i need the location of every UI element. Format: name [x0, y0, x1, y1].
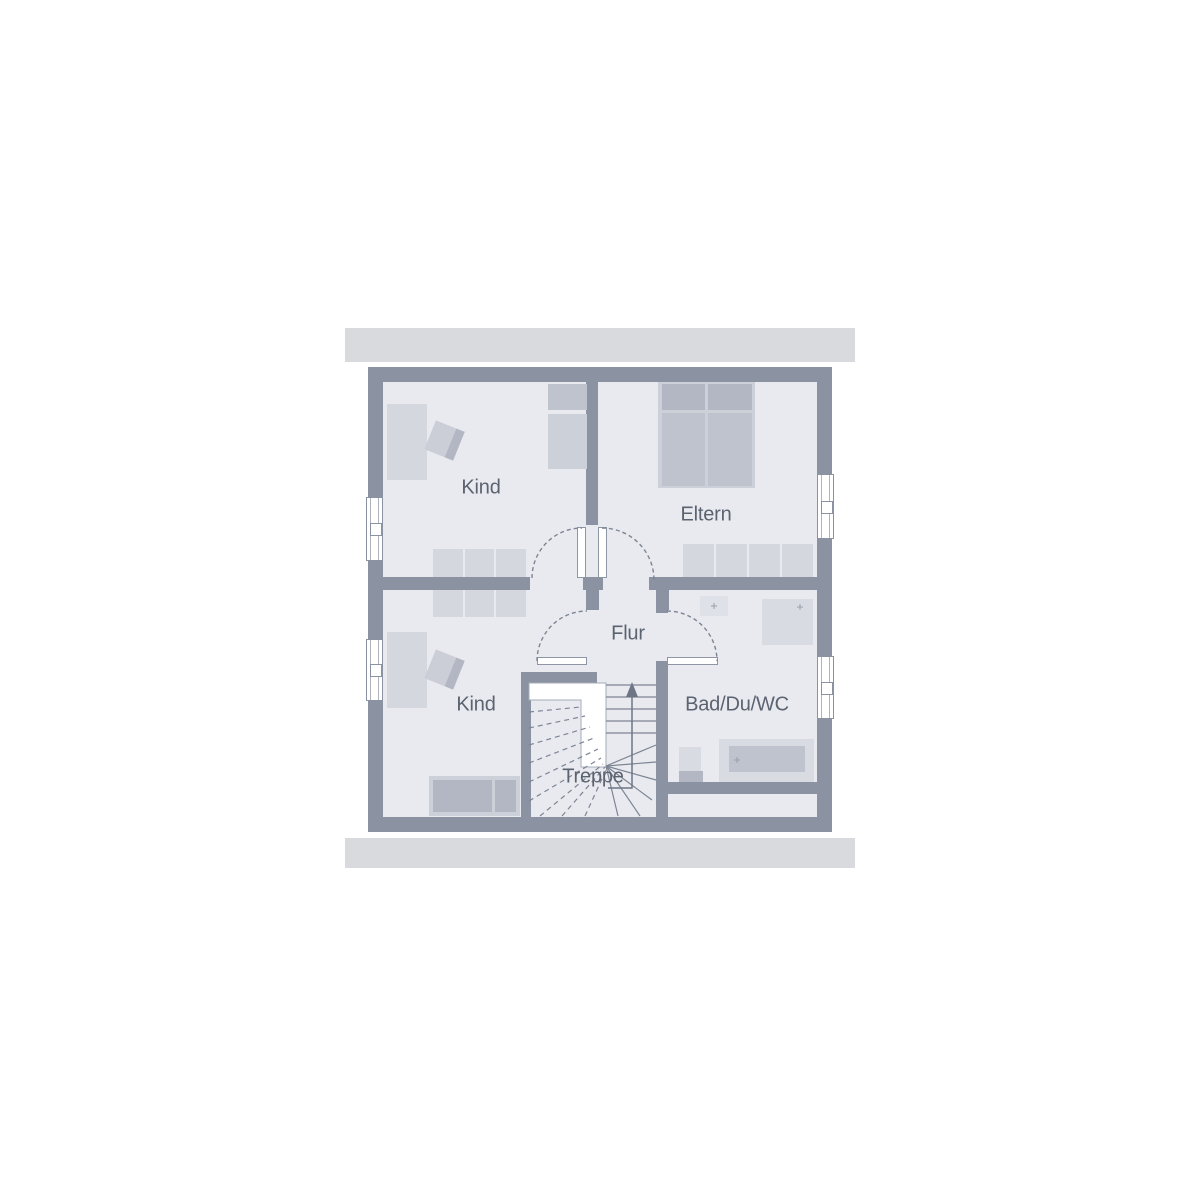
room-label-flur: Flur — [611, 623, 645, 646]
door-leaf-kind-bottom — [537, 657, 587, 665]
desk-kind-bottom — [387, 632, 427, 708]
wall-stair-west — [521, 672, 531, 817]
window-symbol-left-2 — [366, 639, 383, 701]
window-symbol-left-1 — [366, 497, 383, 561]
pillow-right-eltern — [708, 384, 752, 410]
wall-eltern-south — [649, 577, 832, 590]
room-label-kind-top: Kind — [461, 477, 500, 500]
door-leaf-eltern — [598, 527, 607, 578]
room-label-bad: Bad/Du/WC — [685, 694, 789, 717]
bed-kind-top — [548, 414, 587, 469]
wall-bad-south — [668, 782, 817, 794]
wall-kind-rooms-divider — [383, 577, 530, 590]
floor-plan: Kind Eltern Flur Kind Treppe Bad/Du/WC — [0, 0, 1200, 1200]
window-handle-icon — [370, 523, 382, 536]
mattress-right-eltern — [708, 413, 752, 486]
wall-stub-center-left — [586, 590, 599, 610]
bed-pillow-kind-bottom — [495, 780, 516, 812]
roof-overhang-bottom — [345, 838, 855, 868]
toilet-bad — [679, 747, 701, 772]
wall-stair-north — [521, 672, 597, 684]
roof-overhang-top — [345, 328, 855, 362]
bathtub-inner-bad — [729, 746, 805, 772]
bed-mattress-kind-bottom — [433, 780, 492, 812]
mattress-left-eltern — [662, 413, 705, 486]
window-symbol-right-2 — [817, 656, 834, 719]
wall-kind-eltern-divider — [586, 382, 598, 525]
window-handle-icon — [821, 501, 833, 514]
sideboard-kind-bottom — [433, 590, 526, 617]
door-leaf-kind-top — [577, 527, 586, 578]
window-handle-icon — [821, 682, 833, 695]
wall-post-center-left — [583, 577, 603, 590]
pillow-left-eltern — [662, 384, 705, 410]
shower-bad — [762, 599, 813, 645]
toilet-base-bad — [679, 771, 703, 782]
room-label-kind-bottom: Kind — [456, 694, 495, 717]
desk-kind-top — [387, 404, 427, 480]
sink-bad — [700, 596, 728, 616]
window-handle-icon — [370, 664, 382, 677]
room-label-eltern: Eltern — [680, 504, 731, 527]
sideboard-kind-top — [433, 549, 526, 577]
wardrobe-eltern — [683, 544, 813, 577]
bed-pillow-kind-top — [548, 384, 587, 410]
room-label-treppe: Treppe — [562, 766, 623, 789]
door-leaf-bad — [667, 657, 718, 665]
wall-bad-west — [656, 661, 668, 817]
window-symbol-right-1 — [817, 474, 834, 539]
wall-bad-west-post — [656, 590, 668, 613]
